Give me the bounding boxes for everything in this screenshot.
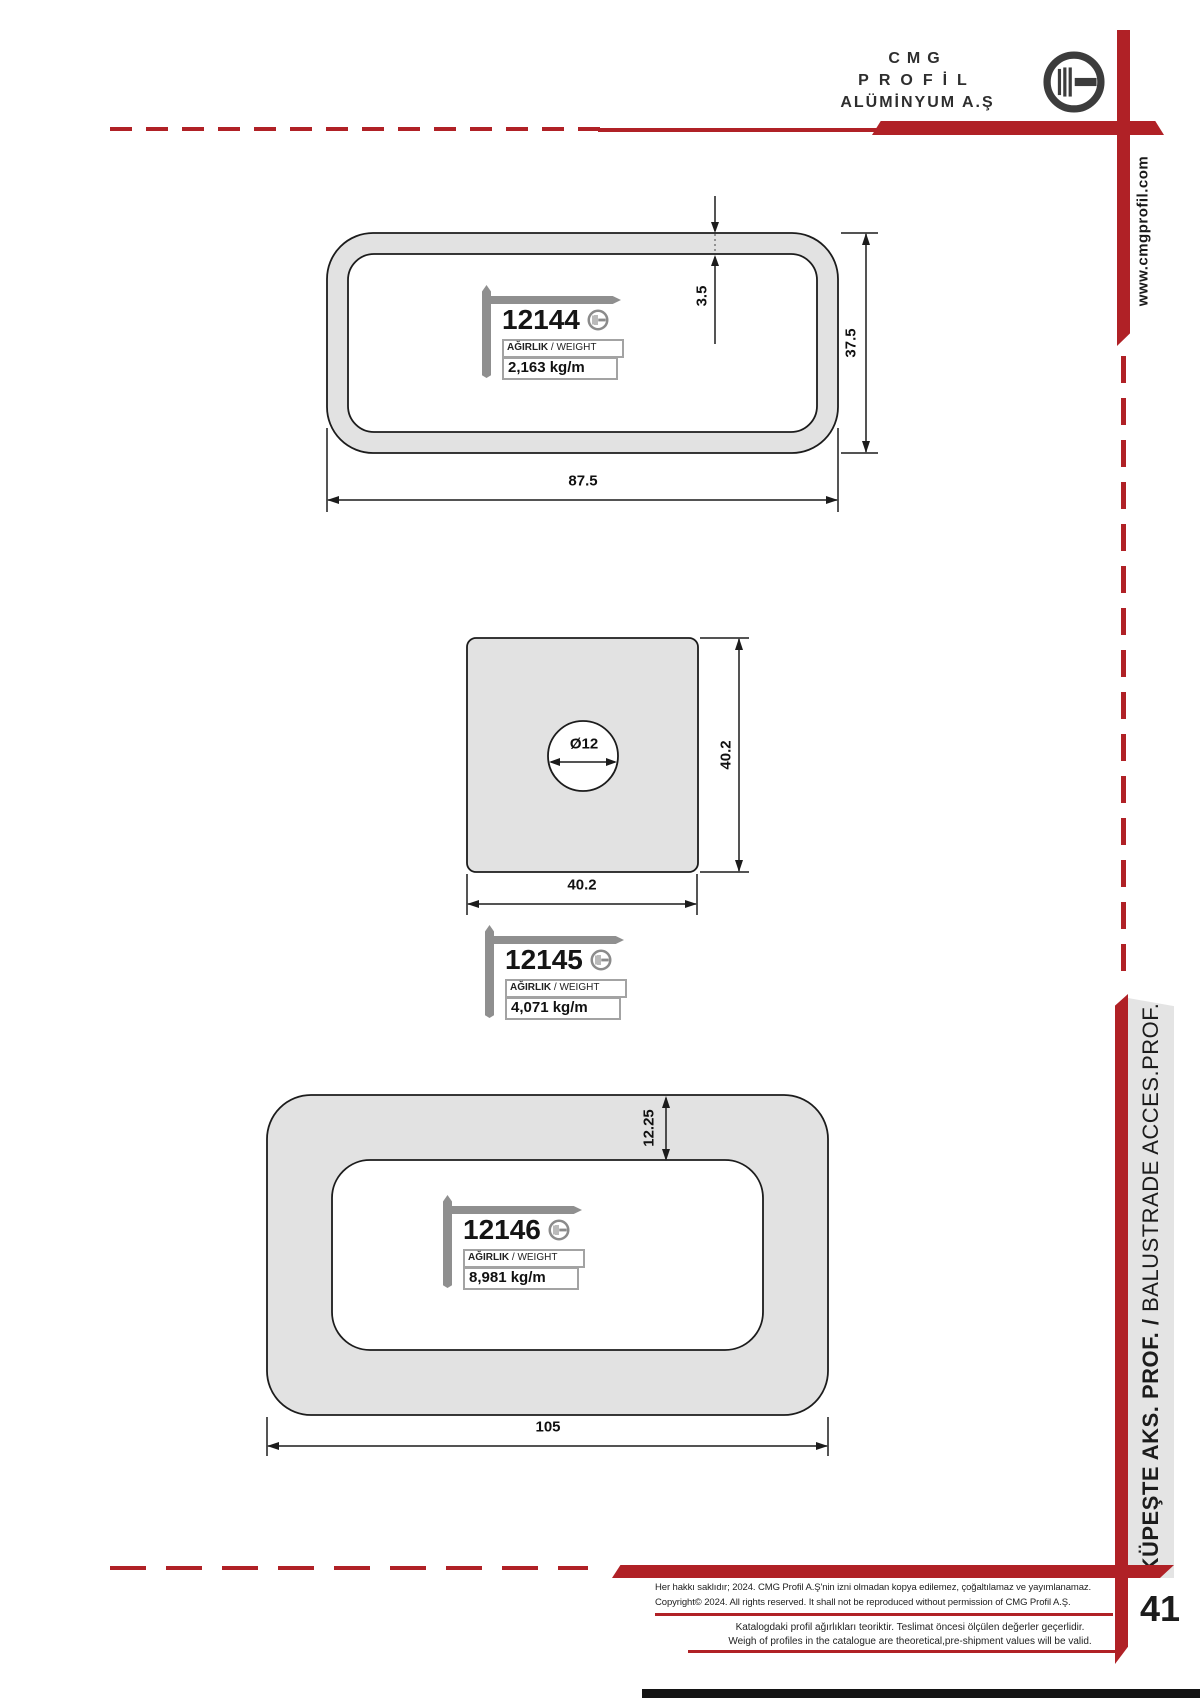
sidebar-category-en: BALUSTRADE ACCES.PROF. [1138, 1003, 1163, 1312]
weight-value-box: 8,981 kg/m [463, 1267, 579, 1290]
profile-card-12146: 12146 AĞIRLIK / WEIGHT 8,981 kg/m [441, 1195, 606, 1295]
dim-width-12145: 40.2 [567, 877, 596, 894]
right-vertical-bar-bottom [1115, 994, 1128, 1578]
page-number: 41 [1128, 1588, 1192, 1630]
profile-code: 12146 [463, 1216, 541, 1244]
profile-code: 12144 [502, 306, 580, 334]
weight-label-en: / WEIGHT [551, 982, 599, 993]
disclaimer-line-tr: Katalogdaki profil ağırlıkları teoriktir… [700, 1621, 1120, 1635]
profile-drawings [0, 0, 1200, 1698]
copyright-line-en: Copyright© 2024. All rights reserved. It… [655, 1595, 1117, 1610]
bottom-black-bar [642, 1689, 1200, 1698]
cmg-logo-icon [587, 309, 609, 331]
dim-wall-12144: 3.5 [694, 286, 711, 307]
profile-card-12145: 12145 AĞIRLIK / WEIGHT 4,071 kg/m [483, 925, 648, 1025]
weight-label-box: AĞIRLIK / WEIGHT [463, 1249, 585, 1268]
footer-rule-2 [688, 1650, 1116, 1653]
footer-rule-1 [655, 1613, 1113, 1616]
dim-hole-12145: Ø12 [570, 736, 598, 753]
weight-value-box: 4,071 kg/m [505, 997, 621, 1020]
dim-height-12144: 37.5 [843, 328, 860, 357]
weight-label-tr: AĞIRLIK [510, 982, 551, 993]
weight-label-en: / WEIGHT [509, 1252, 557, 1263]
profile-card-12144: 12144 AĞIRLIK / WEIGHT 2,163 kg/m [480, 285, 645, 385]
weight-label-tr: AĞIRLIK [507, 342, 548, 353]
profile-title-row: 12145 [505, 946, 612, 974]
copyright-line-tr: Her hakkı saklıdır; 2024. CMG Profil A.Ş… [655, 1580, 1117, 1595]
bottom-dashed-divider [110, 1566, 588, 1570]
cmg-logo-icon [548, 1219, 570, 1241]
sidebar-category-text: KÜPEŞTE AKS. PROF. / BALUSTRADE ACCES.PR… [1138, 1003, 1164, 1574]
profile-title-row: 12144 [502, 306, 609, 334]
weight-label-tr: AĞIRLIK [468, 1252, 509, 1263]
dim-width-12146: 105 [535, 1419, 560, 1436]
dim-width-12144: 87.5 [568, 473, 597, 490]
disclaimer-text: Katalogdaki profil ağırlıkları teoriktir… [700, 1621, 1120, 1648]
profile-title-row: 12146 [463, 1216, 570, 1244]
bracket-horizontal-bar [483, 296, 621, 304]
copyright-text: Her hakkı saklıdır; 2024. CMG Profil A.Ş… [655, 1580, 1117, 1610]
cmg-logo-icon [590, 949, 612, 971]
dim-wall-12146: 12.25 [641, 1109, 658, 1147]
dim-height-12145: 40.2 [718, 740, 735, 769]
bottom-divider-band [612, 1565, 1174, 1578]
bracket-horizontal-bar [444, 1206, 582, 1214]
weight-label-box: AĞIRLIK / WEIGHT [502, 339, 624, 358]
profile-code: 12145 [505, 946, 583, 974]
weight-label-box: AĞIRLIK / WEIGHT [505, 979, 627, 998]
disclaimer-line-en: Weigh of profiles in the catalogue are t… [700, 1635, 1120, 1649]
sidebar-category-tr: KÜPEŞTE AKS. PROF. / [1138, 1312, 1163, 1574]
weight-value-box: 2,163 kg/m [502, 357, 618, 380]
bracket-horizontal-bar [486, 936, 624, 944]
profile-12145-drawing [467, 638, 749, 915]
catalog-page: CMG PROFİL ALÜMİNYUM A.Ş www.cmgprofil.c… [0, 0, 1200, 1698]
weight-label-en: / WEIGHT [548, 342, 596, 353]
